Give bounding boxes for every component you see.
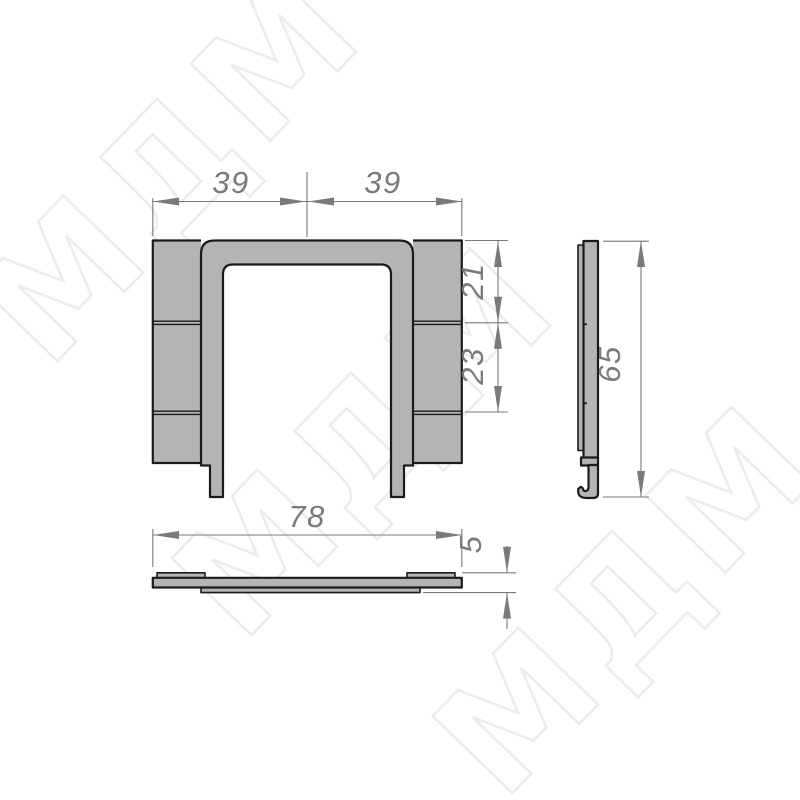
arrowhead <box>436 198 462 206</box>
dim-label-23: 23 <box>455 347 490 385</box>
arrowhead <box>637 241 645 267</box>
side-height-dimension: 65 <box>592 241 649 497</box>
front-left-wing <box>153 241 201 464</box>
dim-label-65: 65 <box>592 345 627 382</box>
technical-drawing: МДМ МДМ МДМ 39 39 <box>0 0 800 800</box>
bottom-main-bar <box>153 578 462 588</box>
side-groove-mark <box>584 323 587 325</box>
dim-label-39-left: 39 <box>212 165 249 200</box>
side-groove-mark <box>584 402 587 404</box>
arrowhead <box>280 198 306 206</box>
dim-label-78: 78 <box>288 499 325 534</box>
dim-label-39-right: 39 <box>364 165 401 200</box>
arrowhead <box>503 547 511 573</box>
arrowhead <box>308 198 334 206</box>
side-bottom-hook <box>578 465 598 498</box>
dim-label-21: 21 <box>455 262 490 300</box>
dim-label-5: 5 <box>453 535 488 554</box>
